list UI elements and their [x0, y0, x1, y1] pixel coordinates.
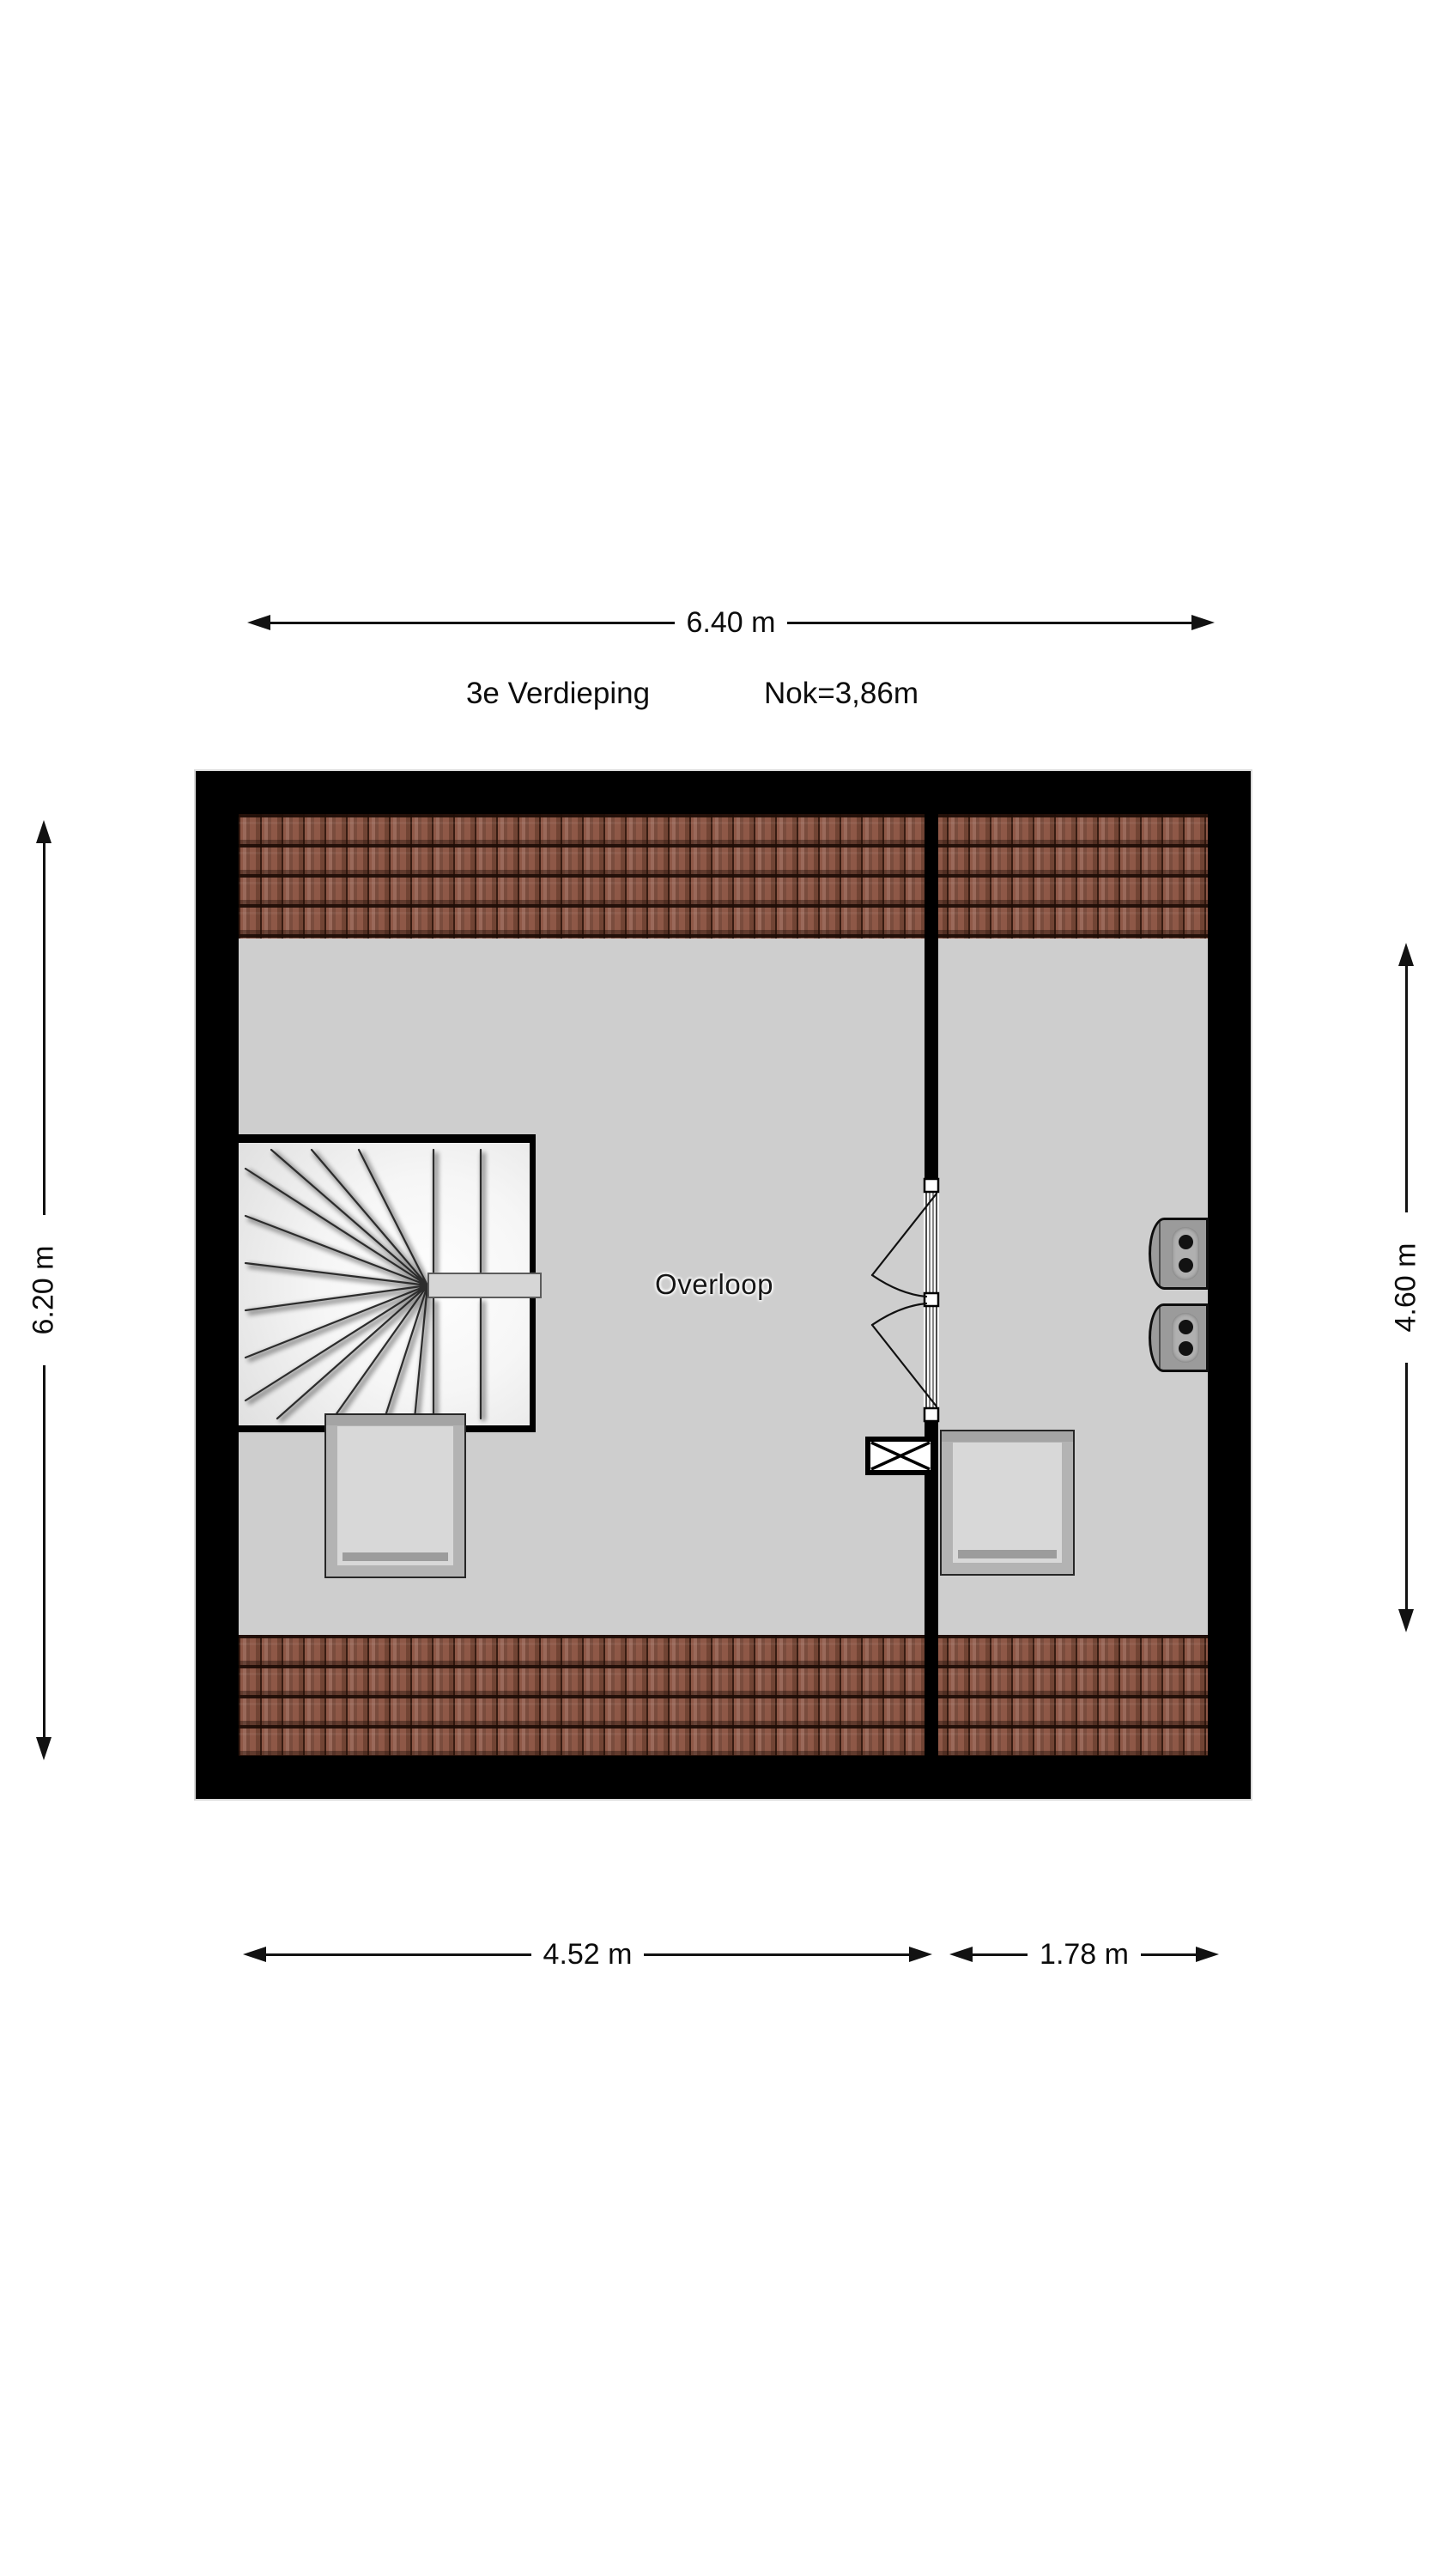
unit-pipes	[1172, 1313, 1199, 1363]
dimension-left-label-wrap: 6.20 m	[27, 1215, 61, 1365]
dimension-line	[43, 843, 45, 1215]
shaft-svg	[865, 1437, 936, 1475]
arrowhead-up-icon	[1398, 943, 1414, 966]
skylight-frame	[326, 1415, 464, 1425]
skylight-sash-bar	[343, 1552, 448, 1561]
pipe-dot-icon	[1179, 1320, 1193, 1334]
dimension-line	[1141, 1953, 1196, 1956]
double-door	[850, 1172, 944, 1430]
unit-pipes	[1172, 1227, 1199, 1280]
dimension-line	[1405, 966, 1408, 1212]
dimension-left-label: 6.20 m	[27, 1246, 61, 1335]
arrowhead-up-icon	[36, 820, 52, 843]
dimension-right-label: 4.60 m	[1390, 1243, 1423, 1333]
ridge-height-label: Nok=3,86m	[764, 677, 919, 711]
dimension-bottom-right-label: 1.78 m	[1028, 1937, 1141, 1971]
dimension-top: 6.40 m	[247, 605, 1215, 640]
pipe-dot-icon	[1179, 1258, 1193, 1273]
dimension-right: 4.60 m	[1389, 943, 1423, 1632]
floor-title: 3e Verdieping	[466, 677, 650, 711]
pipe-dot-icon	[1179, 1341, 1193, 1356]
dimension-line	[1405, 1363, 1408, 1609]
dimension-line	[787, 622, 1191, 624]
skylight-left	[324, 1413, 466, 1578]
floorplan-canvas: 6.40 m 3e Verdieping Nok=3,86m 6.20 m 4.…	[0, 0, 1449, 2576]
roof-tiles-bottom	[239, 1635, 1208, 1756]
skylight-glass	[953, 1443, 1062, 1563]
arrowhead-left-icon	[949, 1947, 973, 1962]
dimension-bottom-left: 4.52 m	[243, 1937, 932, 1971]
dimension-bottom-right: 1.78 m	[949, 1937, 1219, 1971]
arrowhead-right-icon	[909, 1947, 932, 1962]
floor-area: Overloop	[239, 814, 1208, 1756]
skylight-sash-bar	[958, 1550, 1057, 1558]
arrowhead-down-icon	[36, 1737, 52, 1760]
room-label-overloop: Overloop	[655, 1268, 773, 1301]
skylight-frame	[942, 1431, 1073, 1442]
duct-shaft	[865, 1437, 936, 1475]
arrowhead-right-icon	[1196, 1947, 1219, 1962]
skylight-glass	[337, 1426, 453, 1565]
unit-face-line	[1159, 1221, 1161, 1286]
pipe-dot-icon	[1179, 1235, 1193, 1249]
dimension-line	[43, 1365, 45, 1737]
dimension-line	[973, 1953, 1028, 1956]
door-svg	[850, 1172, 944, 1430]
dimension-top-label: 6.40 m	[675, 605, 788, 640]
divider-wall-upper	[925, 814, 938, 1179]
dimension-line	[644, 1953, 909, 1956]
arrowhead-left-icon	[243, 1947, 266, 1962]
roof-tiles-top	[239, 814, 1208, 939]
dimension-line	[270, 622, 675, 624]
heater-unit-1	[1149, 1218, 1209, 1290]
heater-unit-2	[1149, 1303, 1209, 1372]
stair-landing	[427, 1273, 542, 1298]
unit-face-line	[1159, 1307, 1161, 1369]
dimension-left: 6.20 m	[27, 820, 61, 1760]
dimension-bottom-left-label: 4.52 m	[531, 1937, 645, 1971]
arrowhead-right-icon	[1191, 615, 1215, 630]
dimension-right-label-wrap: 4.60 m	[1389, 1212, 1423, 1363]
arrowhead-left-icon	[247, 615, 270, 630]
skylight-right	[940, 1430, 1075, 1576]
dimension-line	[266, 1953, 531, 1956]
arrowhead-down-icon	[1398, 1609, 1414, 1632]
floorplan: Overloop	[196, 771, 1251, 1799]
